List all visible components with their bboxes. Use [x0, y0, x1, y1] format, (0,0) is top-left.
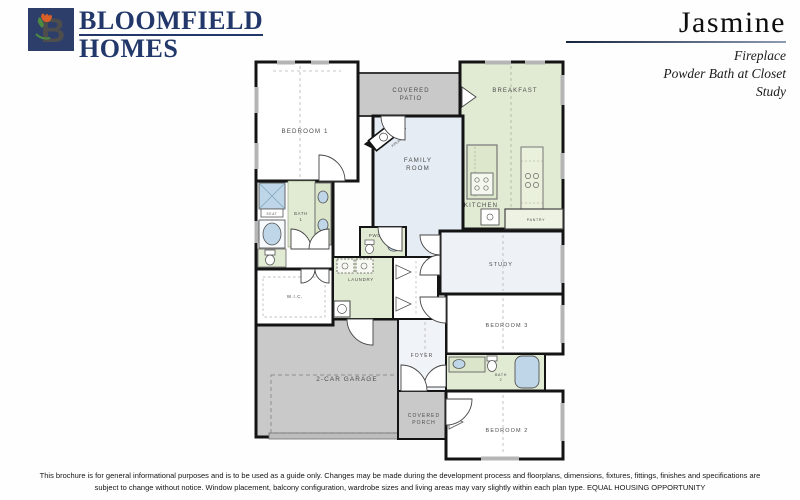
disclaimer-line1: This brochure is for general information… — [0, 470, 800, 482]
tub-icon — [259, 220, 285, 248]
shower-icon: SEAT — [259, 183, 285, 217]
sink-icon — [318, 191, 328, 203]
bedroom2-label: BEDROOM 2 — [486, 428, 529, 434]
plan-title-block: Jasmine Fireplace Powder Bath at Closet … — [566, 6, 786, 102]
covered-patio-label: COVERED — [392, 88, 429, 94]
title-divider — [566, 41, 786, 43]
family-room-label2: ROOM — [406, 165, 430, 172]
toilet-icon — [366, 245, 374, 254]
wic-label: W.I.C. — [287, 294, 303, 299]
room-covered-patio: COVERED PATIO — [356, 73, 463, 116]
tulip-b-monogram-icon: B — [28, 8, 74, 51]
washer-icon — [337, 259, 354, 273]
brochure-page: B BLOOMFIELD HOMES Jasmine Fireplace Pow… — [0, 0, 800, 500]
plan-option-fireplace: Fireplace — [566, 47, 786, 65]
room-bath1: SEAT BATH 1 — [256, 181, 333, 269]
covered-porch-label2: PORCH — [412, 420, 436, 426]
bedroom1-label: BEDROOM 1 — [281, 128, 328, 135]
bedroom3-label: BEDROOM 3 — [486, 323, 529, 329]
plan-option-powder-bath: Powder Bath at Closet — [566, 65, 786, 83]
bath1-label2: 1 — [299, 217, 302, 222]
range-icon — [471, 173, 493, 195]
room-bedroom3: BEDROOM 3 — [446, 294, 563, 354]
room-laundry: LAUNDRY — [333, 257, 393, 319]
toilet-icon — [488, 361, 497, 372]
water-heater-icon — [334, 301, 350, 317]
disclaimer-line2: subject to change without notice. Window… — [0, 482, 800, 494]
logo-name-line2: HOMES — [79, 36, 263, 61]
plan-name: Jasmine — [566, 6, 786, 40]
plan-option-study: Study — [566, 83, 786, 101]
covered-patio-label2: PATIO — [400, 96, 423, 102]
room-bath2: BATH 2 — [446, 354, 545, 391]
double-oven-icon — [481, 209, 499, 225]
bath1-label: BATH — [294, 211, 308, 216]
covered-porch-label: COVERED — [408, 413, 440, 419]
room-covered-porch: COVERED PORCH — [398, 391, 450, 439]
pantry-label: PANTRY — [527, 218, 545, 222]
garage-door — [269, 433, 405, 439]
room-study: STUDY — [440, 231, 563, 294]
tub-icon — [515, 356, 539, 388]
bath2-label: BATH — [495, 373, 507, 377]
laundry-label: LAUNDRY — [348, 277, 374, 282]
sink-icon — [453, 360, 465, 369]
seat-label: SEAT — [267, 212, 278, 216]
bath2-label2: 2 — [500, 378, 503, 382]
room-breakfast-kitchen: BREAKFAST KITCHEN — [460, 62, 563, 229]
kitchen-label: KITCHEN — [464, 203, 498, 209]
bloomfield-logo: B BLOOMFIELD HOMES — [28, 8, 263, 61]
room-bedroom1: BEDROOM 1 — [256, 62, 358, 181]
kitchen-island — [467, 145, 497, 199]
breakfast-label: BREAKFAST — [492, 88, 537, 94]
family-room-label: FAMILY — [404, 157, 432, 164]
garage-label: 2-CAR GARAGE — [316, 376, 378, 383]
disclaimer: This brochure is for general information… — [0, 470, 800, 494]
toilet-icon — [266, 255, 275, 265]
dryer-icon — [356, 259, 373, 273]
floorplan-drawing: COVERED PATIO 2-CAR GARAGE COVERED PORCH… — [253, 57, 571, 465]
study-label: STUDY — [489, 262, 513, 268]
logo-name-line1: BLOOMFIELD — [79, 8, 263, 36]
foyer-label: FOYER — [411, 353, 434, 359]
